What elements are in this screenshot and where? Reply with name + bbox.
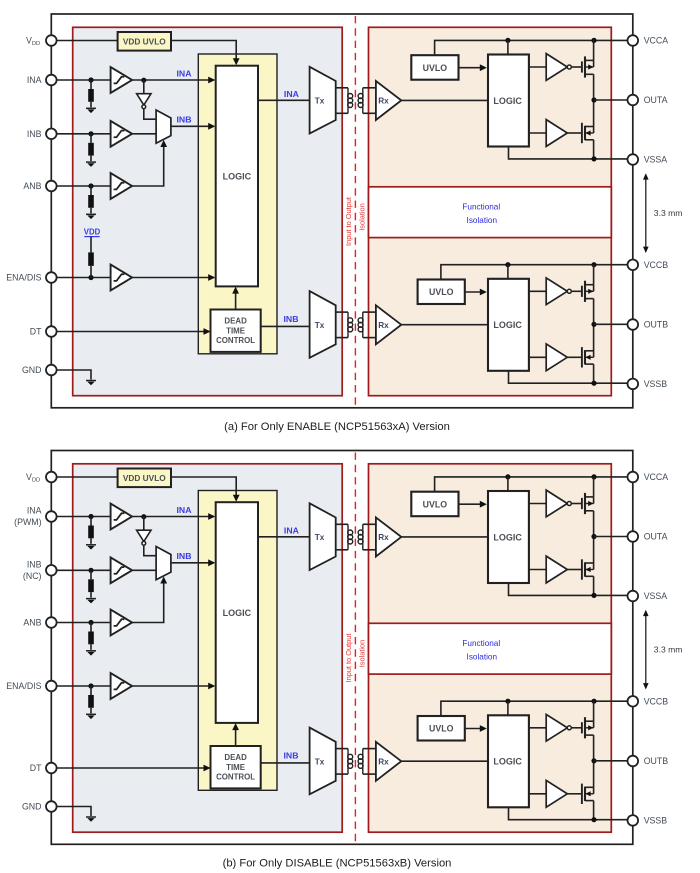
svg-text:DT: DT bbox=[30, 327, 42, 337]
svg-text:INA: INA bbox=[177, 68, 193, 78]
svg-text:VDD: VDD bbox=[26, 36, 40, 48]
svg-text:3.3 mm: 3.3 mm bbox=[654, 644, 683, 654]
svg-text:VDD UVLO: VDD UVLO bbox=[123, 37, 166, 47]
svg-text:OUTB: OUTB bbox=[644, 320, 669, 330]
svg-text:LOGIC: LOGIC bbox=[223, 608, 252, 618]
svg-text:VSSA: VSSA bbox=[644, 155, 668, 165]
svg-text:LOGIC: LOGIC bbox=[493, 532, 522, 542]
svg-text:Tx: Tx bbox=[315, 757, 325, 766]
svg-text:3.3 mm: 3.3 mm bbox=[654, 208, 683, 218]
svg-text:LOGIC: LOGIC bbox=[493, 320, 522, 330]
svg-text:Tx: Tx bbox=[315, 533, 325, 542]
svg-text:LOGIC: LOGIC bbox=[223, 172, 252, 182]
svg-text:ANB: ANB bbox=[23, 181, 41, 191]
svg-text:CONTROL: CONTROL bbox=[216, 336, 255, 345]
svg-text:ENA/DIS: ENA/DIS bbox=[6, 273, 41, 283]
svg-text:GND: GND bbox=[22, 802, 42, 812]
svg-text:Isolation: Isolation bbox=[467, 216, 498, 225]
svg-text:Tx: Tx bbox=[315, 97, 325, 106]
svg-text:Rx: Rx bbox=[378, 97, 389, 106]
svg-text:TIME: TIME bbox=[226, 763, 245, 772]
svg-text:INA: INA bbox=[27, 75, 42, 85]
svg-text:Rx: Rx bbox=[378, 321, 389, 330]
svg-text:VCCB: VCCB bbox=[644, 697, 669, 707]
svg-text:DEAD: DEAD bbox=[224, 317, 247, 326]
svg-text:INB: INB bbox=[27, 560, 42, 570]
svg-text:INB: INB bbox=[27, 129, 42, 139]
svg-text:(NC): (NC) bbox=[23, 571, 42, 581]
svg-text:VCCA: VCCA bbox=[644, 472, 669, 482]
svg-text:DT: DT bbox=[30, 763, 42, 773]
svg-text:DEAD: DEAD bbox=[224, 753, 247, 762]
svg-text:INB: INB bbox=[177, 115, 192, 125]
svg-text:INB: INB bbox=[284, 314, 299, 324]
svg-text:CONTROL: CONTROL bbox=[216, 773, 255, 782]
svg-text:VCCA: VCCA bbox=[644, 36, 669, 46]
svg-text:(a) For Only ENABLE (NCP51563x: (a) For Only ENABLE (NCP51563xA) Version bbox=[224, 421, 450, 433]
svg-text:OUTA: OUTA bbox=[644, 95, 668, 105]
svg-text:UVLO: UVLO bbox=[423, 63, 448, 73]
svg-text:TIME: TIME bbox=[226, 326, 245, 335]
svg-text:ENA/DIS: ENA/DIS bbox=[6, 681, 41, 691]
svg-text:INA: INA bbox=[284, 89, 300, 99]
svg-text:VDD: VDD bbox=[26, 472, 40, 484]
svg-text:ANB: ANB bbox=[23, 618, 41, 628]
svg-text:Functional: Functional bbox=[462, 202, 500, 211]
svg-text:UVLO: UVLO bbox=[423, 499, 448, 509]
svg-text:Tx: Tx bbox=[315, 321, 325, 330]
svg-text:UVLO: UVLO bbox=[429, 287, 454, 297]
svg-text:UVLO: UVLO bbox=[429, 724, 454, 734]
svg-text:Isolation: Isolation bbox=[358, 640, 367, 668]
svg-text:Functional: Functional bbox=[462, 639, 500, 648]
svg-text:OUTA: OUTA bbox=[644, 532, 668, 542]
svg-text:(PWM): (PWM) bbox=[14, 517, 41, 527]
svg-text:GND: GND bbox=[22, 365, 42, 375]
svg-text:VDD UVLO: VDD UVLO bbox=[123, 473, 166, 483]
svg-text:(b) For Only DISABLE (NCP51563: (b) For Only DISABLE (NCP51563xB) Versio… bbox=[223, 858, 452, 870]
svg-text:INA: INA bbox=[27, 506, 42, 516]
svg-text:VSSA: VSSA bbox=[644, 591, 668, 601]
svg-text:VSSB: VSSB bbox=[644, 816, 668, 826]
svg-text:VCCB: VCCB bbox=[644, 260, 669, 270]
svg-text:VSSB: VSSB bbox=[644, 379, 668, 389]
svg-text:INB: INB bbox=[177, 551, 192, 561]
svg-text:Rx: Rx bbox=[378, 533, 389, 542]
svg-text:VDD: VDD bbox=[84, 227, 101, 236]
svg-text:INA: INA bbox=[284, 526, 300, 536]
svg-text:LOGIC: LOGIC bbox=[493, 757, 522, 767]
svg-text:Isolation: Isolation bbox=[358, 203, 367, 231]
svg-text:Input to Output: Input to Output bbox=[344, 197, 353, 246]
svg-text:LOGIC: LOGIC bbox=[493, 96, 522, 106]
svg-text:Rx: Rx bbox=[378, 757, 389, 766]
svg-text:INA: INA bbox=[177, 505, 193, 515]
svg-text:INB: INB bbox=[284, 750, 299, 760]
svg-text:Input to Output: Input to Output bbox=[344, 634, 353, 683]
svg-text:OUTB: OUTB bbox=[644, 756, 669, 766]
svg-text:Isolation: Isolation bbox=[467, 653, 498, 662]
